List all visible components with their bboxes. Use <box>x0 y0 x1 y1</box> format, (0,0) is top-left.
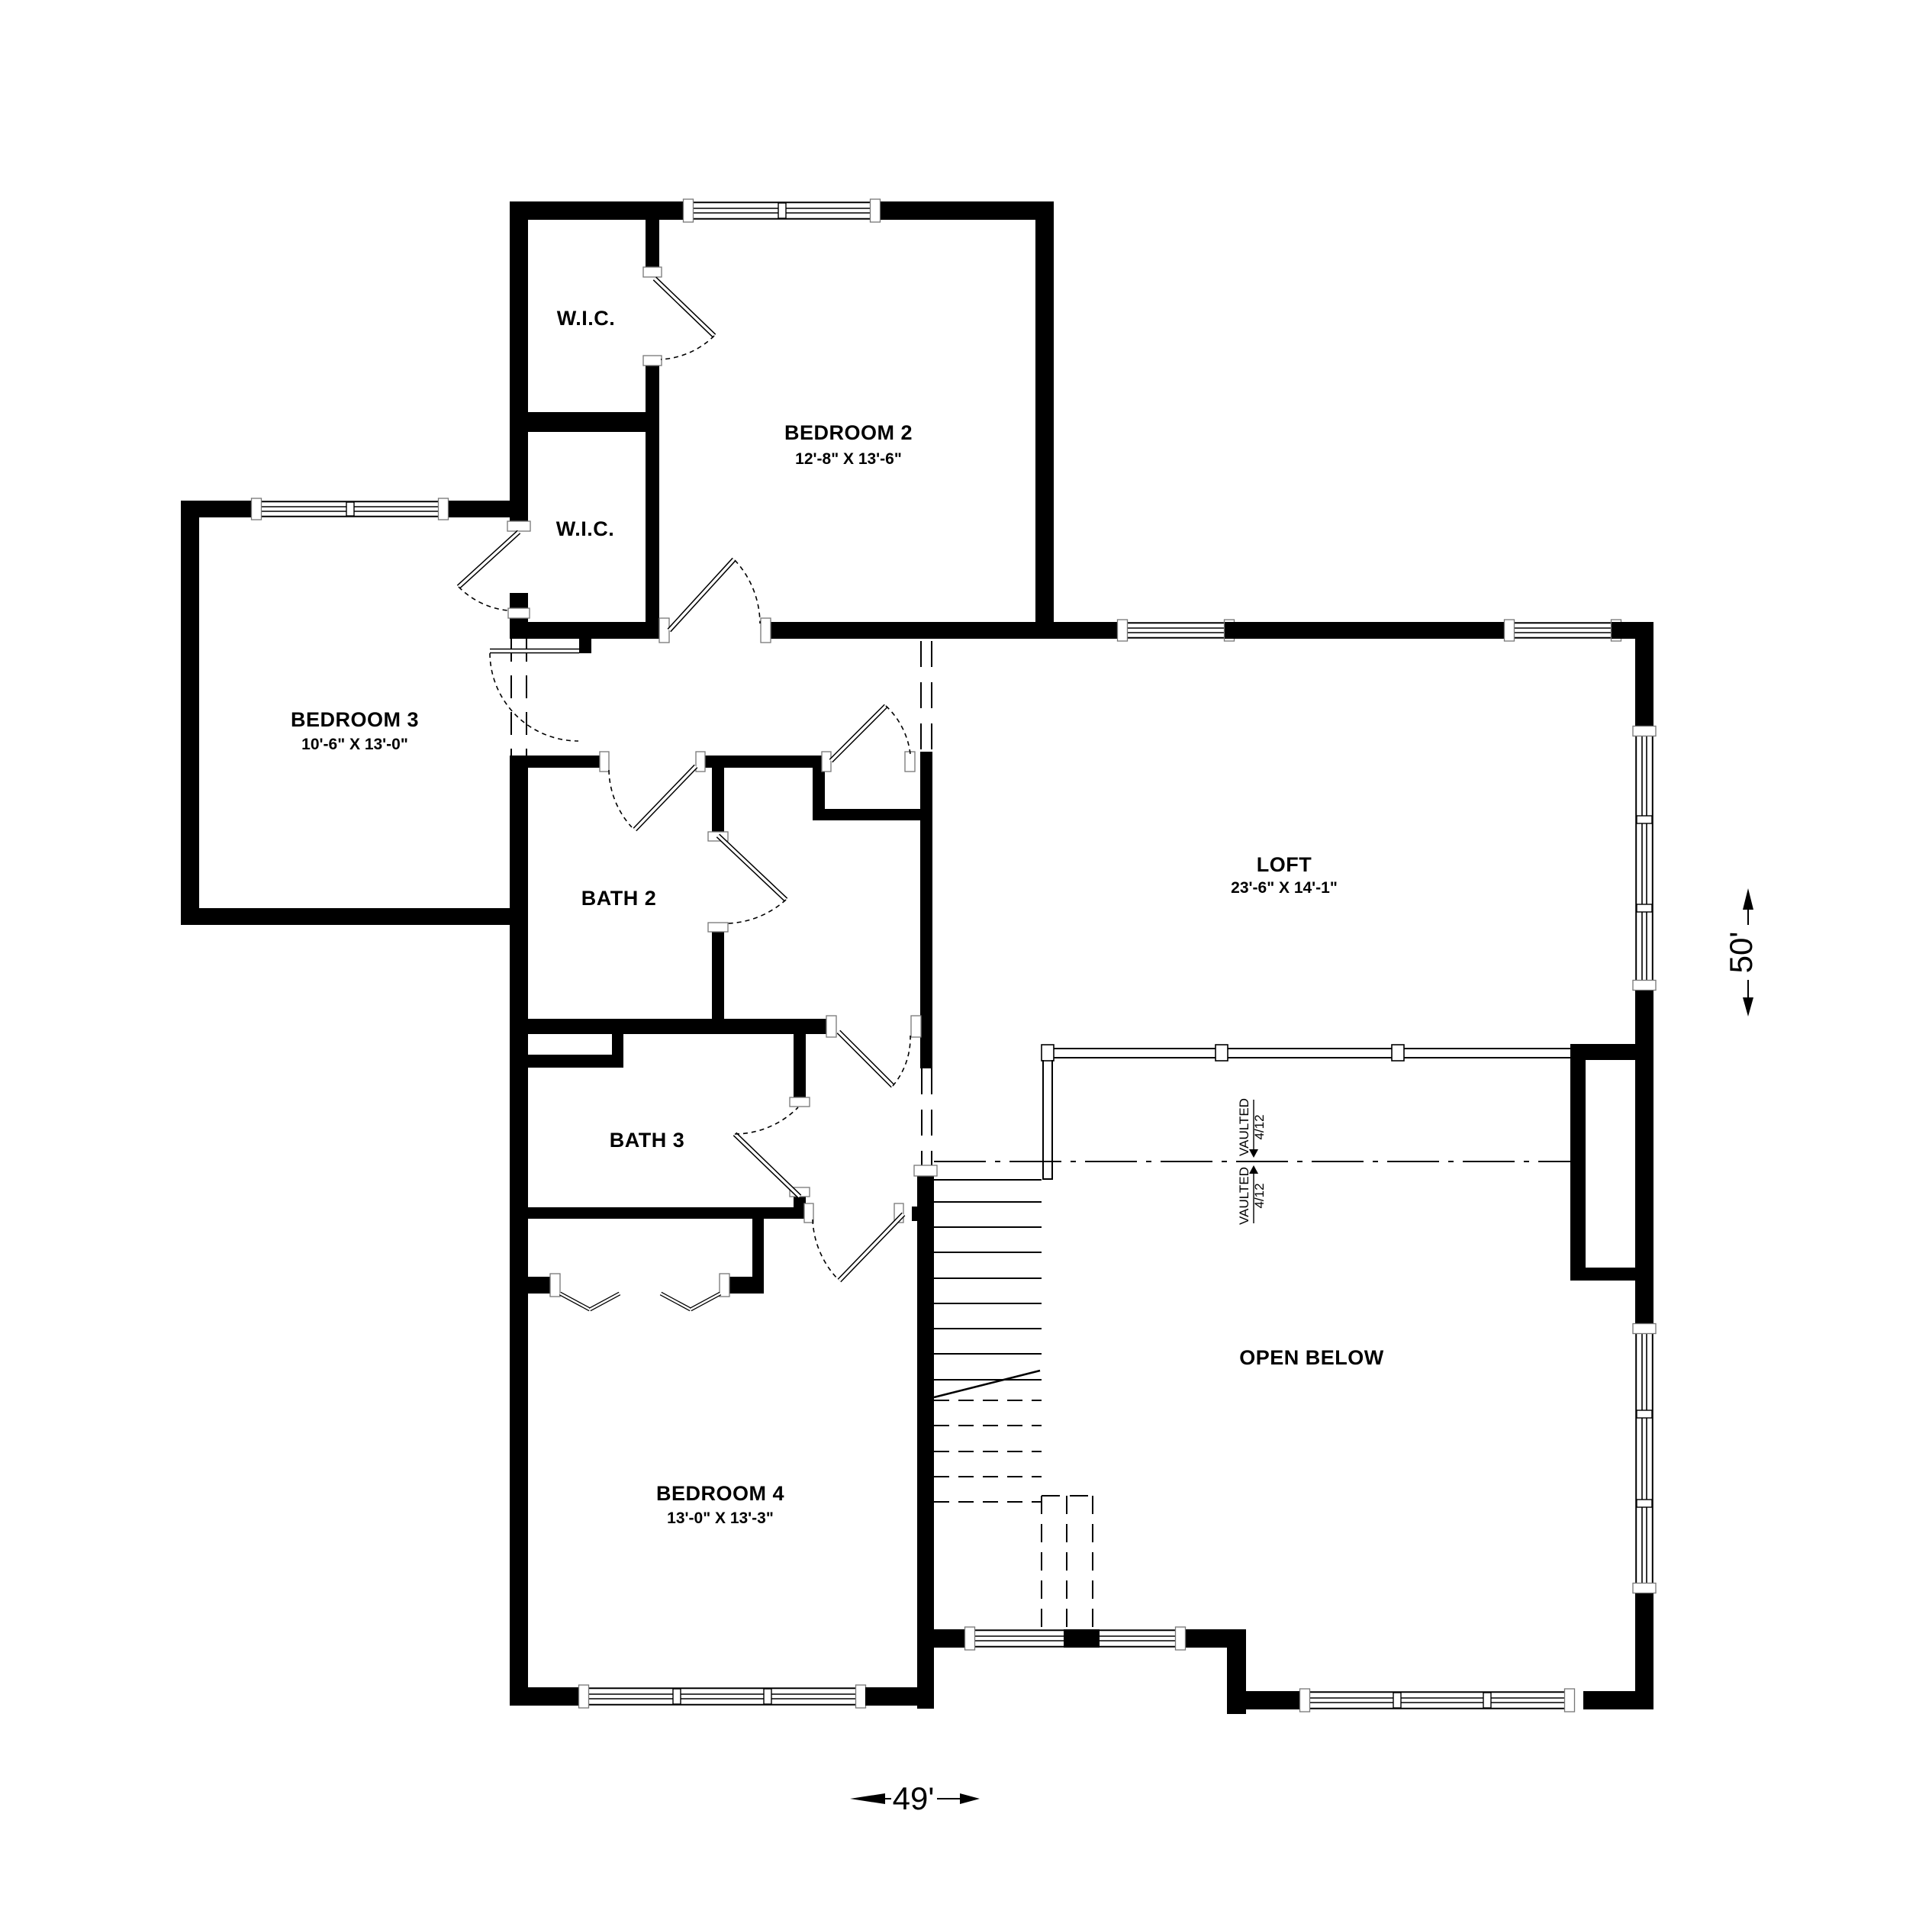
svg-text:LOFT: LOFT <box>1257 853 1312 876</box>
svg-text:OPEN BELOW: OPEN BELOW <box>1239 1346 1384 1369</box>
svg-text:13'-0" X 13'-3": 13'-0" X 13'-3" <box>667 1509 774 1527</box>
svg-text:VAULTED: VAULTED <box>1237 1098 1251 1156</box>
svg-text:VAULTED: VAULTED <box>1237 1167 1251 1225</box>
svg-text:10'-6" X 13'-0": 10'-6" X 13'-0" <box>301 736 408 753</box>
svg-text:BEDROOM 2: BEDROOM 2 <box>784 421 913 444</box>
svg-text:W.I.C.: W.I.C. <box>557 307 616 330</box>
svg-text:50': 50' <box>1723 932 1759 974</box>
svg-text:BEDROOM 3: BEDROOM 3 <box>291 708 419 731</box>
svg-text:BATH 2: BATH 2 <box>581 887 657 910</box>
svg-text:23'-6" X 14'-1": 23'-6" X 14'-1" <box>1231 879 1338 897</box>
svg-text:BEDROOM 4: BEDROOM 4 <box>656 1482 784 1505</box>
svg-text:BATH 3: BATH 3 <box>610 1129 685 1152</box>
svg-text:4/12: 4/12 <box>1252 1183 1267 1208</box>
svg-text:4/12: 4/12 <box>1252 1114 1267 1139</box>
svg-text:12'-8" X 13'-6": 12'-8" X 13'-6" <box>795 450 902 468</box>
svg-text:W.I.C.: W.I.C. <box>556 517 615 540</box>
svg-text:49': 49' <box>893 1780 935 1816</box>
